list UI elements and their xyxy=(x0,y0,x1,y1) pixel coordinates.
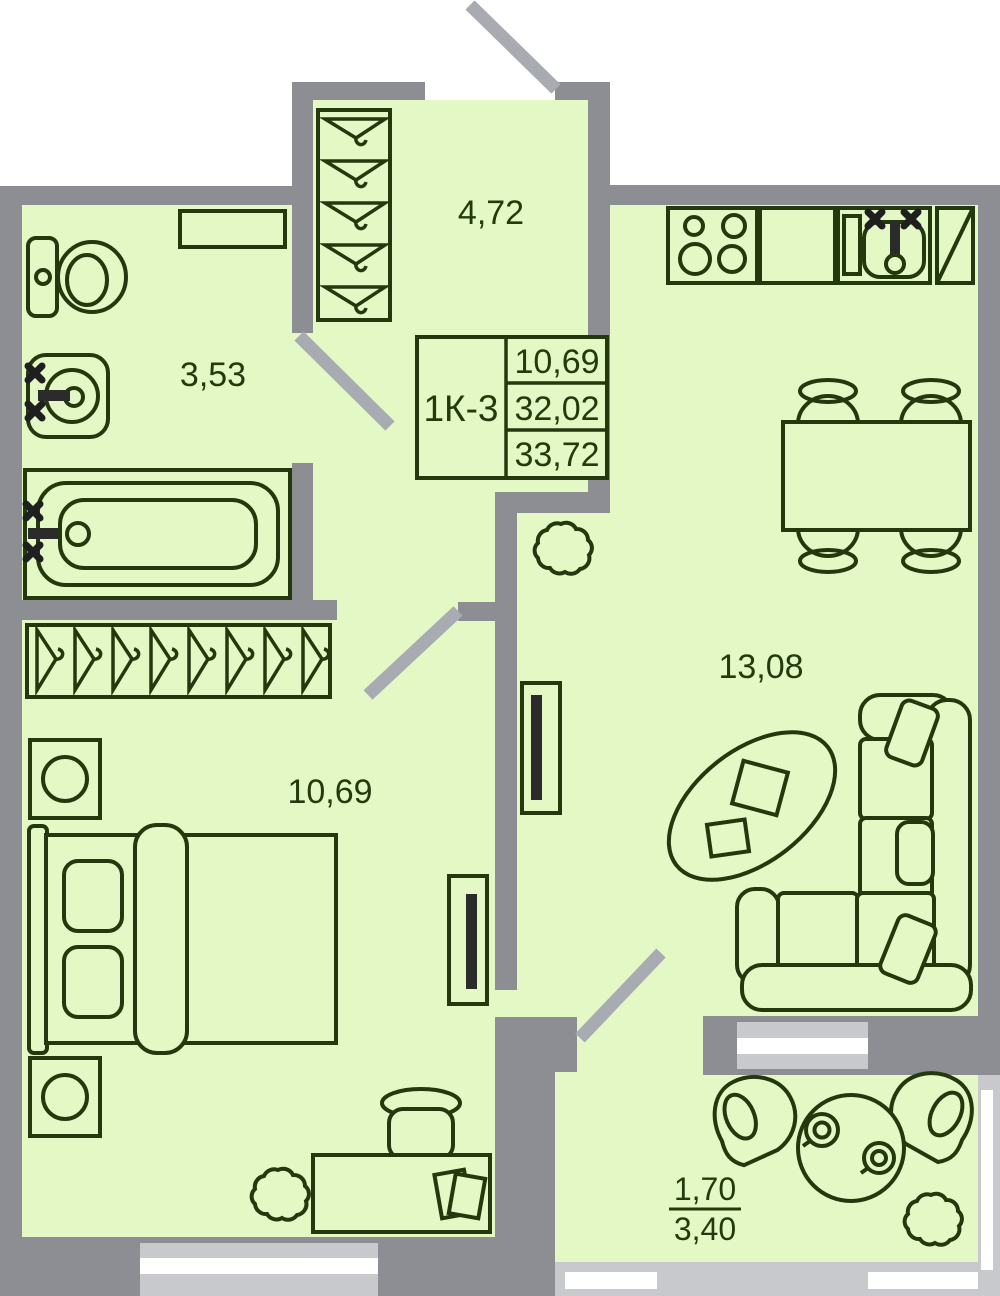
bedroom-window xyxy=(140,1243,378,1296)
unit-label: 1К-3 xyxy=(423,388,498,429)
dining-table-icon xyxy=(783,422,970,530)
plant-icon xyxy=(252,1169,309,1220)
plant-icon xyxy=(535,523,592,574)
balcony-reduced-area: 1,70 xyxy=(674,1171,736,1207)
unit-value-1: 10,69 xyxy=(514,343,599,381)
nightstand-icon xyxy=(30,740,100,818)
balcony-area-label: 1,70 3,40 xyxy=(669,1171,741,1247)
floor-plan-svg: 1К-3 10,69 32,02 33,72 4,72 3,53 10,69 1… xyxy=(0,0,1000,1296)
unit-value-2: 32,02 xyxy=(514,390,599,428)
unit-value-3: 33,72 xyxy=(514,436,599,474)
double-bed-icon xyxy=(29,825,336,1053)
floor-plan: 1К-3 10,69 32,02 33,72 4,72 3,53 10,69 1… xyxy=(0,0,1000,1296)
bathtub-icon xyxy=(25,470,290,598)
info-box: 1К-3 10,69 32,02 33,72 xyxy=(417,337,607,478)
nightstand-icon xyxy=(30,1058,100,1136)
entrance-door-swing-icon xyxy=(470,5,556,89)
living-balcony-window xyxy=(737,1022,868,1069)
bathroom-area-label: 3,53 xyxy=(180,356,246,394)
hall-area-label: 4,72 xyxy=(458,194,524,232)
balcony-full-area: 3,40 xyxy=(674,1211,736,1247)
washbasin-icon xyxy=(28,355,108,437)
living-area-label: 13,08 xyxy=(718,648,803,686)
toilet-icon xyxy=(28,238,126,316)
plant-icon xyxy=(905,1194,962,1245)
bedroom-area-label: 10,69 xyxy=(287,773,372,811)
papers-icon xyxy=(434,1170,485,1219)
